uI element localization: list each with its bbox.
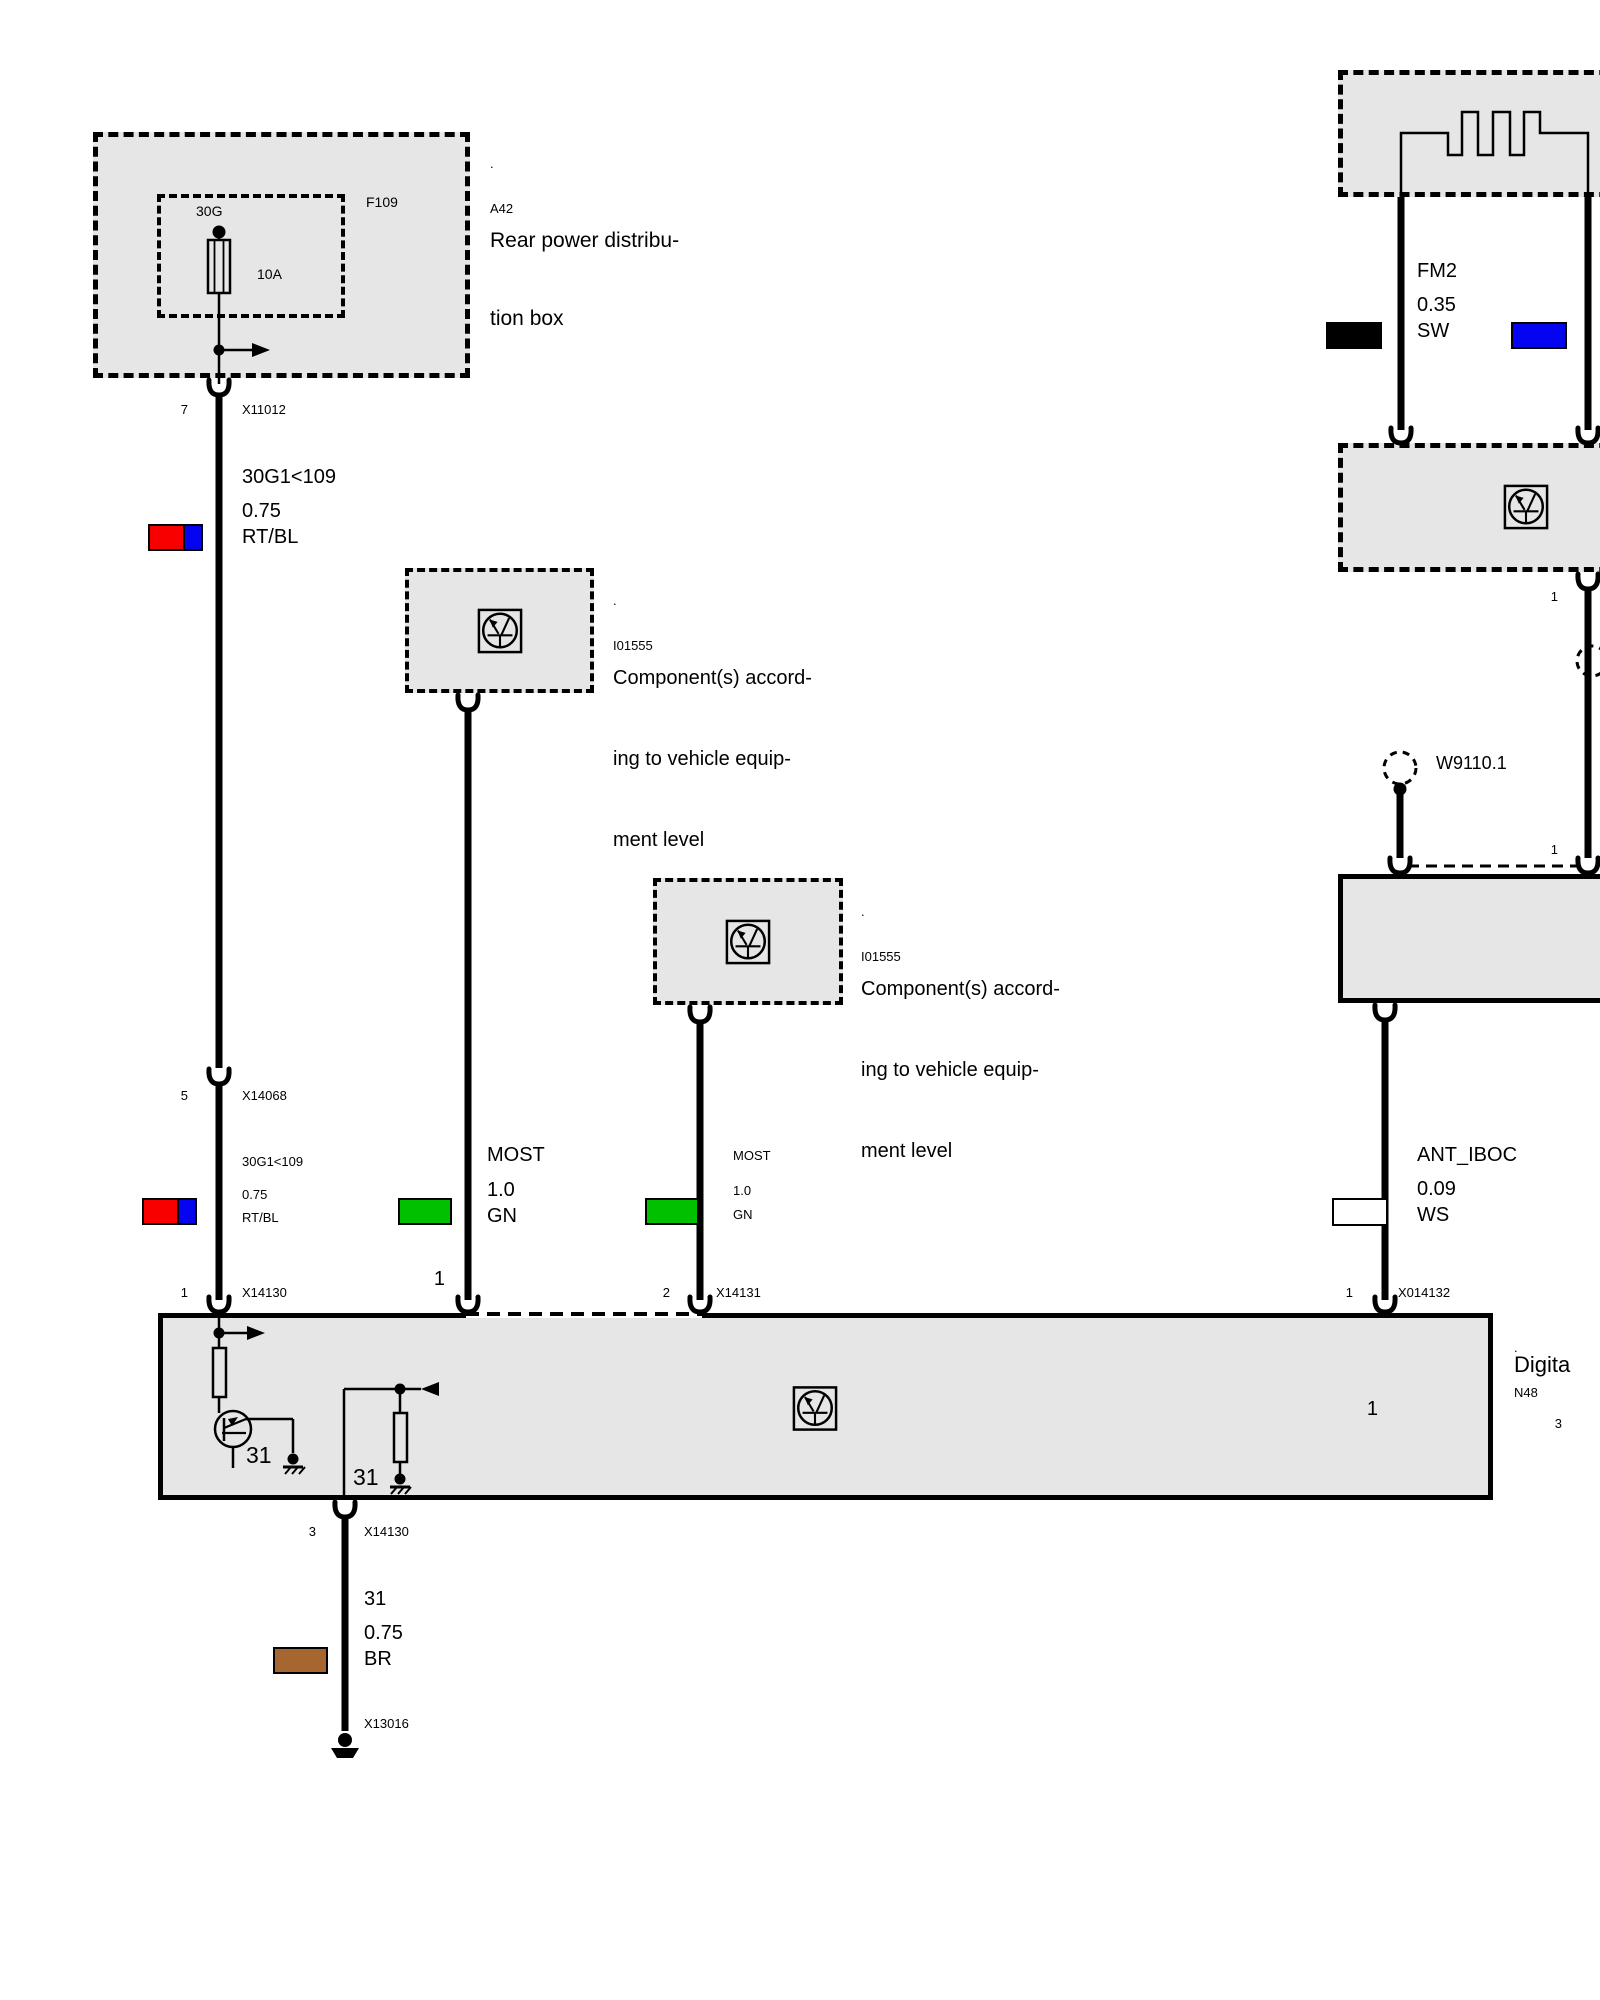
i01555-description: Component(s) accord- ing to vehicle equi… [861, 922, 1060, 1219]
swatch-blue [183, 526, 201, 549]
input-arrow-left-icon [421, 1382, 439, 1396]
wire-color: GN [487, 1205, 517, 1228]
ground-icon [283, 1454, 305, 1475]
swatch-white [1334, 1200, 1386, 1224]
n48-internal-circuit [213, 1315, 439, 1497]
wire-color-swatch-rt-bl [142, 1198, 197, 1225]
wire-size: 0.35 [1417, 294, 1456, 317]
wire-color-swatch-gn [398, 1198, 452, 1225]
wire-color: SW [1417, 320, 1449, 343]
roof-antenna-icon [1401, 112, 1588, 195]
wire-color: RT/BL [242, 526, 298, 549]
schematic-symbols-layer [0, 0, 1600, 2000]
resistor-icon [394, 1413, 407, 1462]
w9110-label: W9110.1 [1436, 756, 1507, 771]
fuse-rating: 10A [257, 266, 282, 282]
wire-color-swatch-rt-bl [148, 524, 203, 551]
connector-label: X11012 [242, 402, 286, 417]
internal-ground-ref: 31 [246, 1443, 272, 1468]
wire-circuit: 30G1<109 [242, 466, 336, 489]
dot: . [861, 904, 901, 919]
swatch-red [144, 1200, 177, 1223]
ground-icon [390, 1474, 411, 1495]
wire-circuit: ANT_IBOC [1417, 1144, 1517, 1167]
a42-name: Rear power distribu- tion box [490, 176, 679, 384]
i01555-description: Component(s) accord- ing to vehicle equi… [613, 611, 812, 908]
connector-label: X14131 [716, 1285, 761, 1300]
fuse-feed: 30G [196, 203, 222, 219]
fuse-symbol [208, 226, 270, 385]
control-unit-icon [1505, 486, 1547, 528]
swatch-red [150, 526, 183, 549]
internal-ground-ref: 31 [353, 1465, 379, 1490]
dot: . [613, 593, 653, 608]
swatch-blue [1513, 324, 1565, 347]
connector-label: X14130 [364, 1524, 409, 1539]
pin-label: 2 [640, 1285, 670, 1300]
connector-label: X13016 [364, 1716, 409, 1731]
wire-color-swatch-sw [1326, 322, 1382, 349]
wire-color: GN [733, 1207, 753, 1222]
swatch-green [647, 1200, 697, 1223]
swatch-black [1328, 324, 1380, 347]
pin-label: 7 [158, 402, 188, 417]
wire-color: RT/BL [242, 1210, 279, 1225]
wire-color-swatch-bl [1511, 322, 1567, 349]
connector-label: X14130 [242, 1285, 287, 1300]
pin-label: 1 [1350, 1398, 1378, 1421]
pin-label: 1 [158, 1285, 188, 1300]
wire-size: 0.75 [364, 1622, 403, 1645]
ground-stud-icon [331, 1733, 359, 1758]
swatch-brown [275, 1649, 326, 1672]
wire-color-swatch-gn [645, 1198, 699, 1225]
wire-color: BR [364, 1648, 392, 1671]
pin-label: 3 [1542, 1416, 1562, 1431]
dot: . [490, 156, 513, 171]
n48-code: N48 [1514, 1385, 1538, 1400]
w9110-splice-icon [1384, 752, 1416, 796]
swatch-green [400, 1200, 450, 1223]
branch-arrow-right-icon [252, 343, 270, 357]
pin-label: 1 [415, 1268, 445, 1291]
control-unit-icon [794, 1387, 836, 1429]
fuse-terminal-dot [213, 226, 226, 239]
control-unit-icon [727, 921, 769, 963]
wire-color-swatch-br [273, 1647, 328, 1674]
wire-size: 1.0 [487, 1179, 515, 1202]
wire-size: 0.75 [242, 500, 281, 523]
control-unit-icon [479, 610, 521, 652]
wire-circuit: FM2 [1417, 260, 1457, 283]
wire-circuit: MOST [733, 1148, 771, 1163]
wire-circuit: MOST [487, 1144, 545, 1167]
n48-name: Digita [1514, 1352, 1570, 1377]
swatch-blue [177, 1200, 195, 1223]
wire-color-swatch-ws [1332, 1198, 1388, 1226]
branch-arrow-right-icon [247, 1326, 265, 1340]
wire-size: 1.0 [733, 1183, 751, 1198]
wire-circuit: 30G1<109 [242, 1154, 303, 1169]
wire-size: 0.09 [1417, 1178, 1456, 1201]
pin-label: 5 [158, 1088, 188, 1103]
wire-color: WS [1417, 1204, 1449, 1227]
resistor-icon [213, 1348, 226, 1397]
pin-label: 1 [1325, 1285, 1353, 1300]
n48-dashed-border-segment [466, 1308, 702, 1318]
connector-label: X014132 [1398, 1285, 1450, 1300]
pin-label: 1 [1538, 589, 1558, 604]
wire-circuit: 31 [364, 1588, 386, 1611]
pin-label: 1 [1538, 842, 1558, 857]
wire-size: 0.75 [242, 1187, 267, 1202]
fuse-code: F109 [366, 194, 398, 210]
connector-label: X14068 [242, 1088, 287, 1103]
wiring-diagram-page: . A42 Rear power distribu- tion box F109… [0, 0, 1600, 2000]
pin-label: 3 [296, 1524, 316, 1539]
